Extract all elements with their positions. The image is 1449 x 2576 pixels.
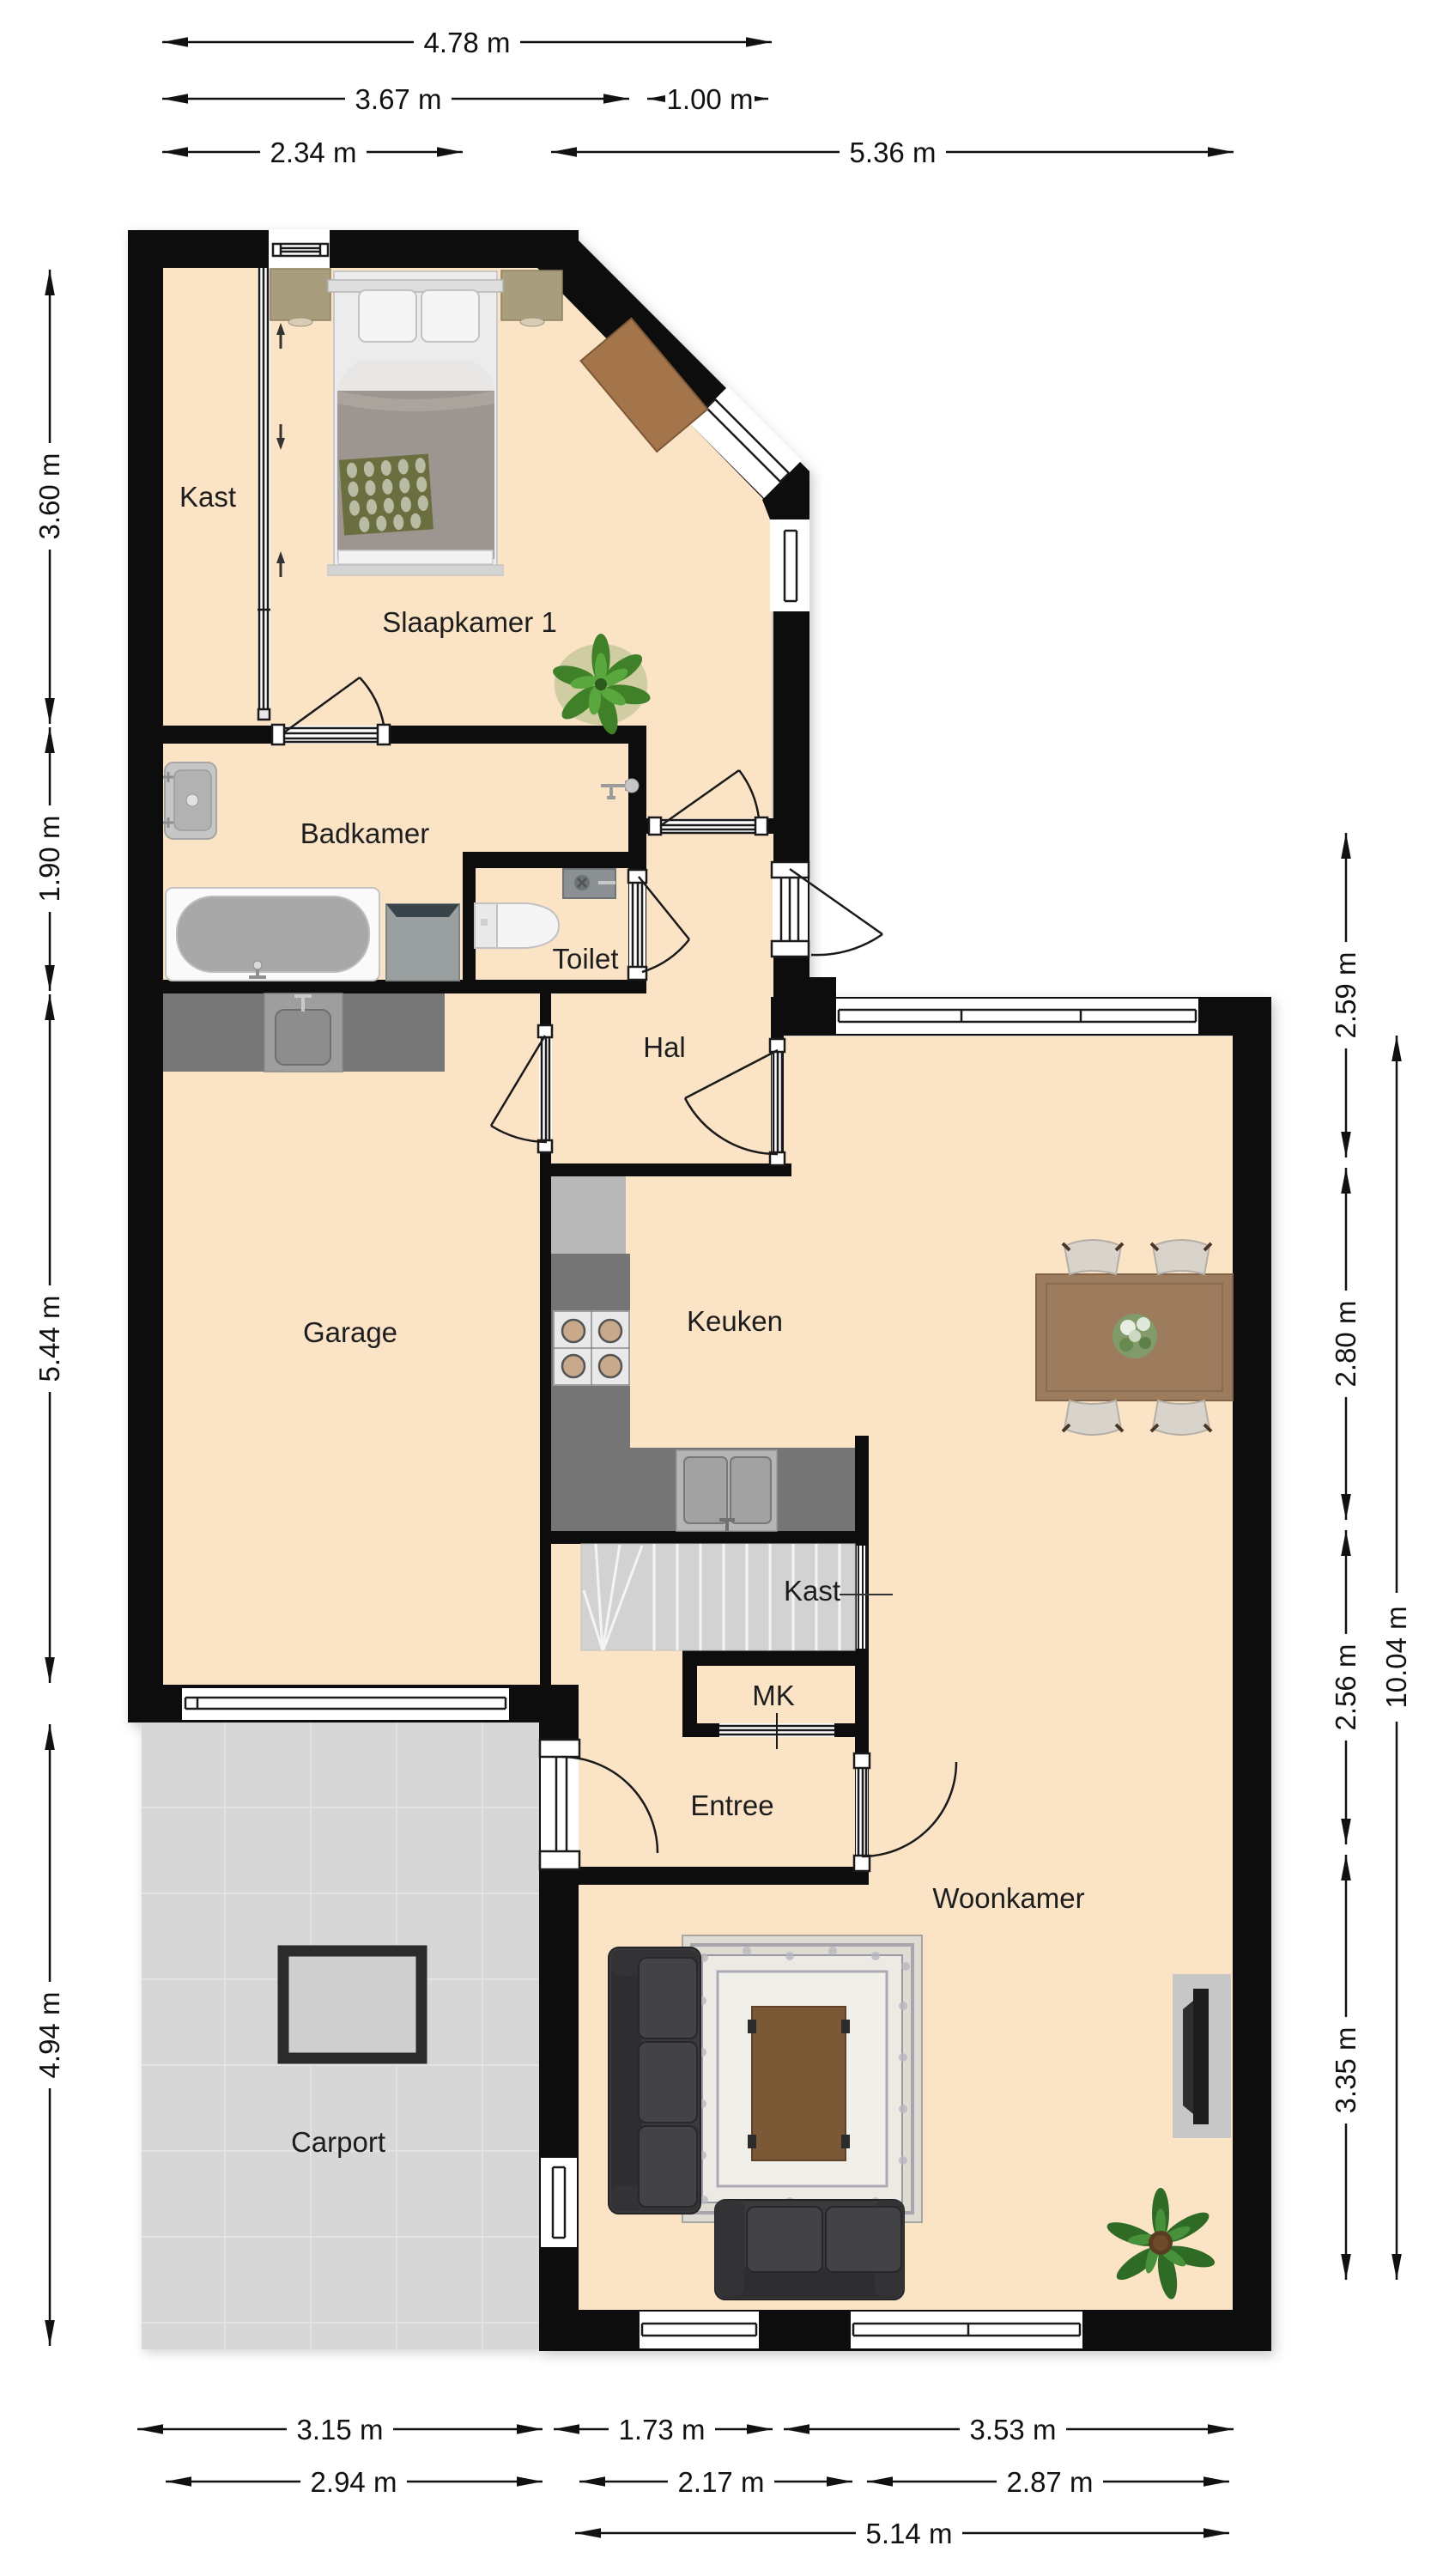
svg-text:2.34 m: 2.34 m xyxy=(270,137,357,168)
svg-text:1.00 m: 1.00 m xyxy=(667,83,754,115)
svg-text:Toilet: Toilet xyxy=(552,943,618,975)
svg-text:5.36 m: 5.36 m xyxy=(850,137,937,168)
svg-text:Kast: Kast xyxy=(179,481,236,513)
svg-text:2.87 m: 2.87 m xyxy=(1007,2466,1094,2498)
svg-text:Slaapkamer 1: Slaapkamer 1 xyxy=(382,606,557,638)
svg-text:4.94 m: 4.94 m xyxy=(33,1992,65,2079)
svg-text:3.60 m: 3.60 m xyxy=(33,453,65,540)
svg-text:Entree: Entree xyxy=(690,1789,773,1821)
svg-text:Garage: Garage xyxy=(303,1316,397,1348)
svg-text:4.78 m: 4.78 m xyxy=(424,27,511,58)
svg-text:Keuken: Keuken xyxy=(687,1305,783,1337)
svg-text:Hal: Hal xyxy=(643,1031,686,1063)
svg-text:5.44 m: 5.44 m xyxy=(33,1296,65,1382)
svg-text:1.73 m: 1.73 m xyxy=(619,2414,706,2445)
svg-text:3.35 m: 3.35 m xyxy=(1330,2027,1361,2114)
svg-text:MK: MK xyxy=(752,1680,795,1711)
svg-text:2.94 m: 2.94 m xyxy=(311,2466,397,2498)
svg-text:3.67 m: 3.67 m xyxy=(355,83,442,115)
svg-text:5.14 m: 5.14 m xyxy=(866,2518,953,2549)
svg-text:3.53 m: 3.53 m xyxy=(970,2414,1057,2445)
svg-text:1.90 m: 1.90 m xyxy=(33,816,65,902)
svg-text:2.80 m: 2.80 m xyxy=(1330,1301,1361,1388)
svg-text:2.17 m: 2.17 m xyxy=(678,2466,765,2498)
svg-text:2.59 m: 2.59 m xyxy=(1330,952,1361,1039)
svg-text:Carport: Carport xyxy=(291,2126,385,2158)
svg-text:3.15 m: 3.15 m xyxy=(297,2414,384,2445)
svg-text:2.56 m: 2.56 m xyxy=(1330,1644,1361,1731)
svg-text:10.04 m: 10.04 m xyxy=(1380,1606,1412,1708)
svg-text:Kast: Kast xyxy=(784,1575,840,1607)
svg-text:Woonkamer: Woonkamer xyxy=(932,1882,1084,1914)
svg-text:Badkamer: Badkamer xyxy=(300,817,429,849)
